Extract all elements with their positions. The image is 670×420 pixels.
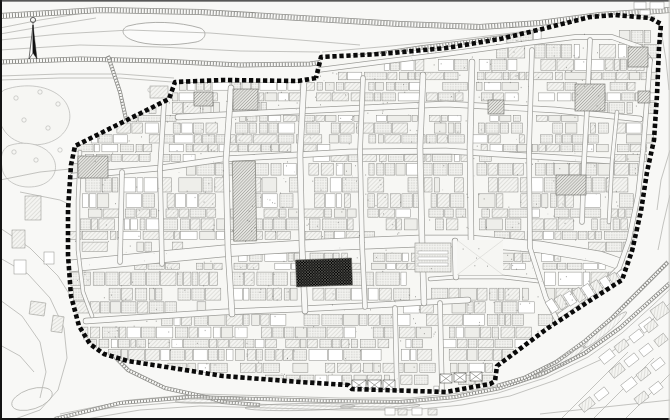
building — [398, 409, 407, 415]
building — [51, 315, 64, 332]
major-building — [78, 156, 108, 178]
map-document — [0, 0, 670, 420]
major-building — [638, 91, 650, 103]
major-building — [232, 161, 256, 241]
building — [428, 409, 437, 415]
major-building — [296, 258, 353, 287]
building — [14, 260, 26, 274]
building — [12, 230, 25, 248]
major-building — [233, 89, 258, 110]
major-building — [556, 175, 586, 195]
building — [150, 86, 168, 98]
building — [44, 252, 54, 264]
building — [29, 301, 46, 316]
map-canvas — [0, 0, 670, 420]
building — [385, 408, 395, 415]
major-building — [488, 100, 504, 114]
major-building — [575, 84, 605, 111]
major-building — [194, 92, 213, 106]
building — [25, 196, 41, 220]
building — [650, 2, 664, 9]
major-building — [628, 47, 648, 67]
building — [634, 2, 646, 9]
pond — [123, 22, 205, 44]
building — [412, 408, 422, 415]
building — [640, 10, 650, 15]
